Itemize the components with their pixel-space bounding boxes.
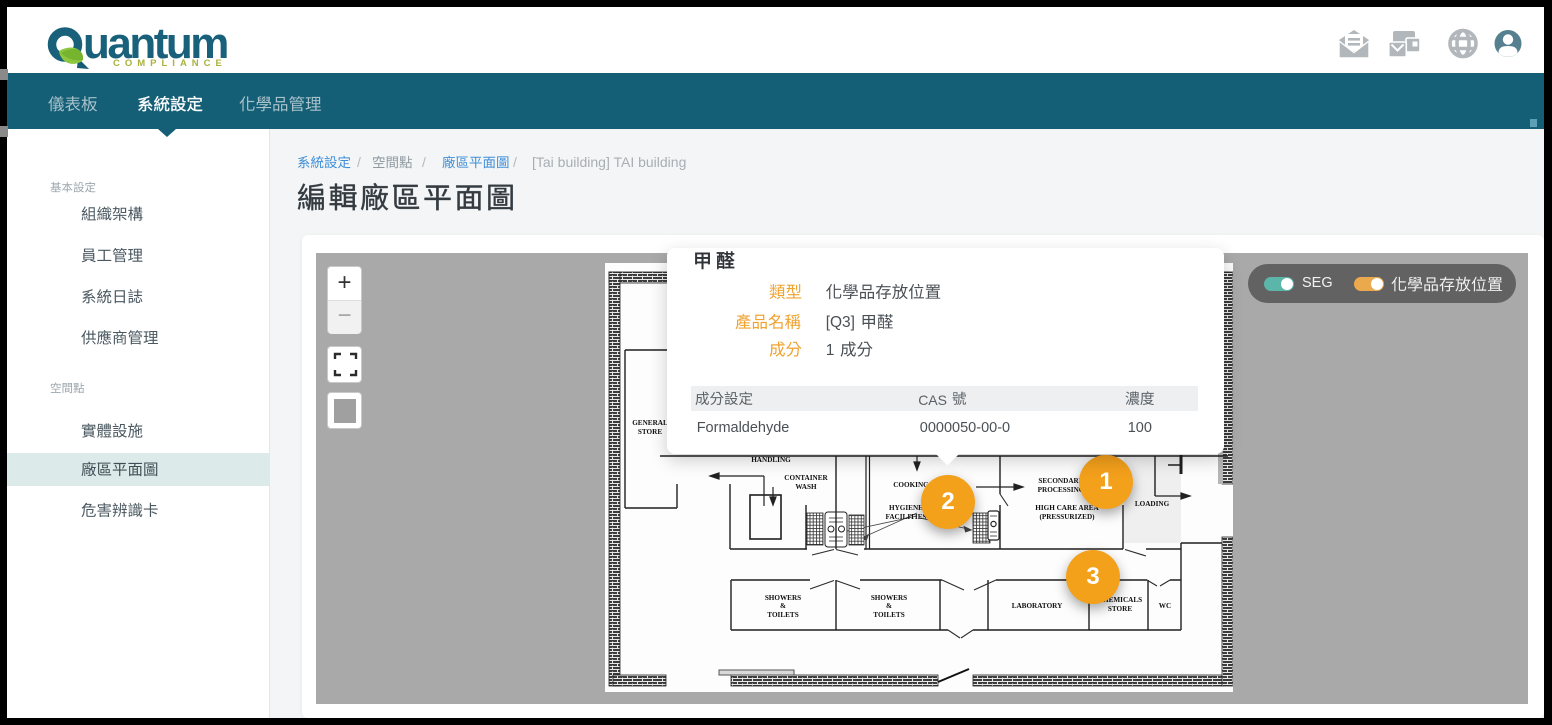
svg-text:WASH: WASH	[795, 483, 817, 491]
svg-text:STORE: STORE	[638, 428, 662, 436]
svg-text:HANDLING: HANDLING	[751, 456, 791, 464]
svg-text:WC: WC	[1159, 602, 1171, 610]
svg-text:CONTAINER: CONTAINER	[784, 474, 828, 482]
svg-text:(PRESSURIZED): (PRESSURIZED)	[1039, 513, 1095, 521]
svg-text:TOILETS: TOILETS	[767, 611, 798, 619]
svg-text:&: &	[886, 602, 892, 610]
svg-text:TOILETS: TOILETS	[873, 611, 904, 619]
svg-text:SHOWERS: SHOWERS	[871, 594, 907, 602]
svg-text:PROCESSING: PROCESSING	[1038, 486, 1085, 494]
svg-text:&: &	[780, 602, 786, 610]
svg-text:HYGIENE: HYGIENE	[889, 504, 923, 512]
svg-text:FACILITIES: FACILITIES	[885, 513, 926, 521]
svg-text:HIGH CARE AREA: HIGH CARE AREA	[1035, 504, 1099, 512]
svg-text:SHOWERS: SHOWERS	[765, 594, 801, 602]
svg-text:GENERAL: GENERAL	[632, 419, 668, 427]
svg-text:STORE: STORE	[1108, 605, 1132, 613]
svg-text:LABORATORY: LABORATORY	[1012, 602, 1063, 610]
svg-text:LOADING: LOADING	[1135, 500, 1170, 508]
svg-text:SECONDARY: SECONDARY	[1038, 477, 1084, 485]
